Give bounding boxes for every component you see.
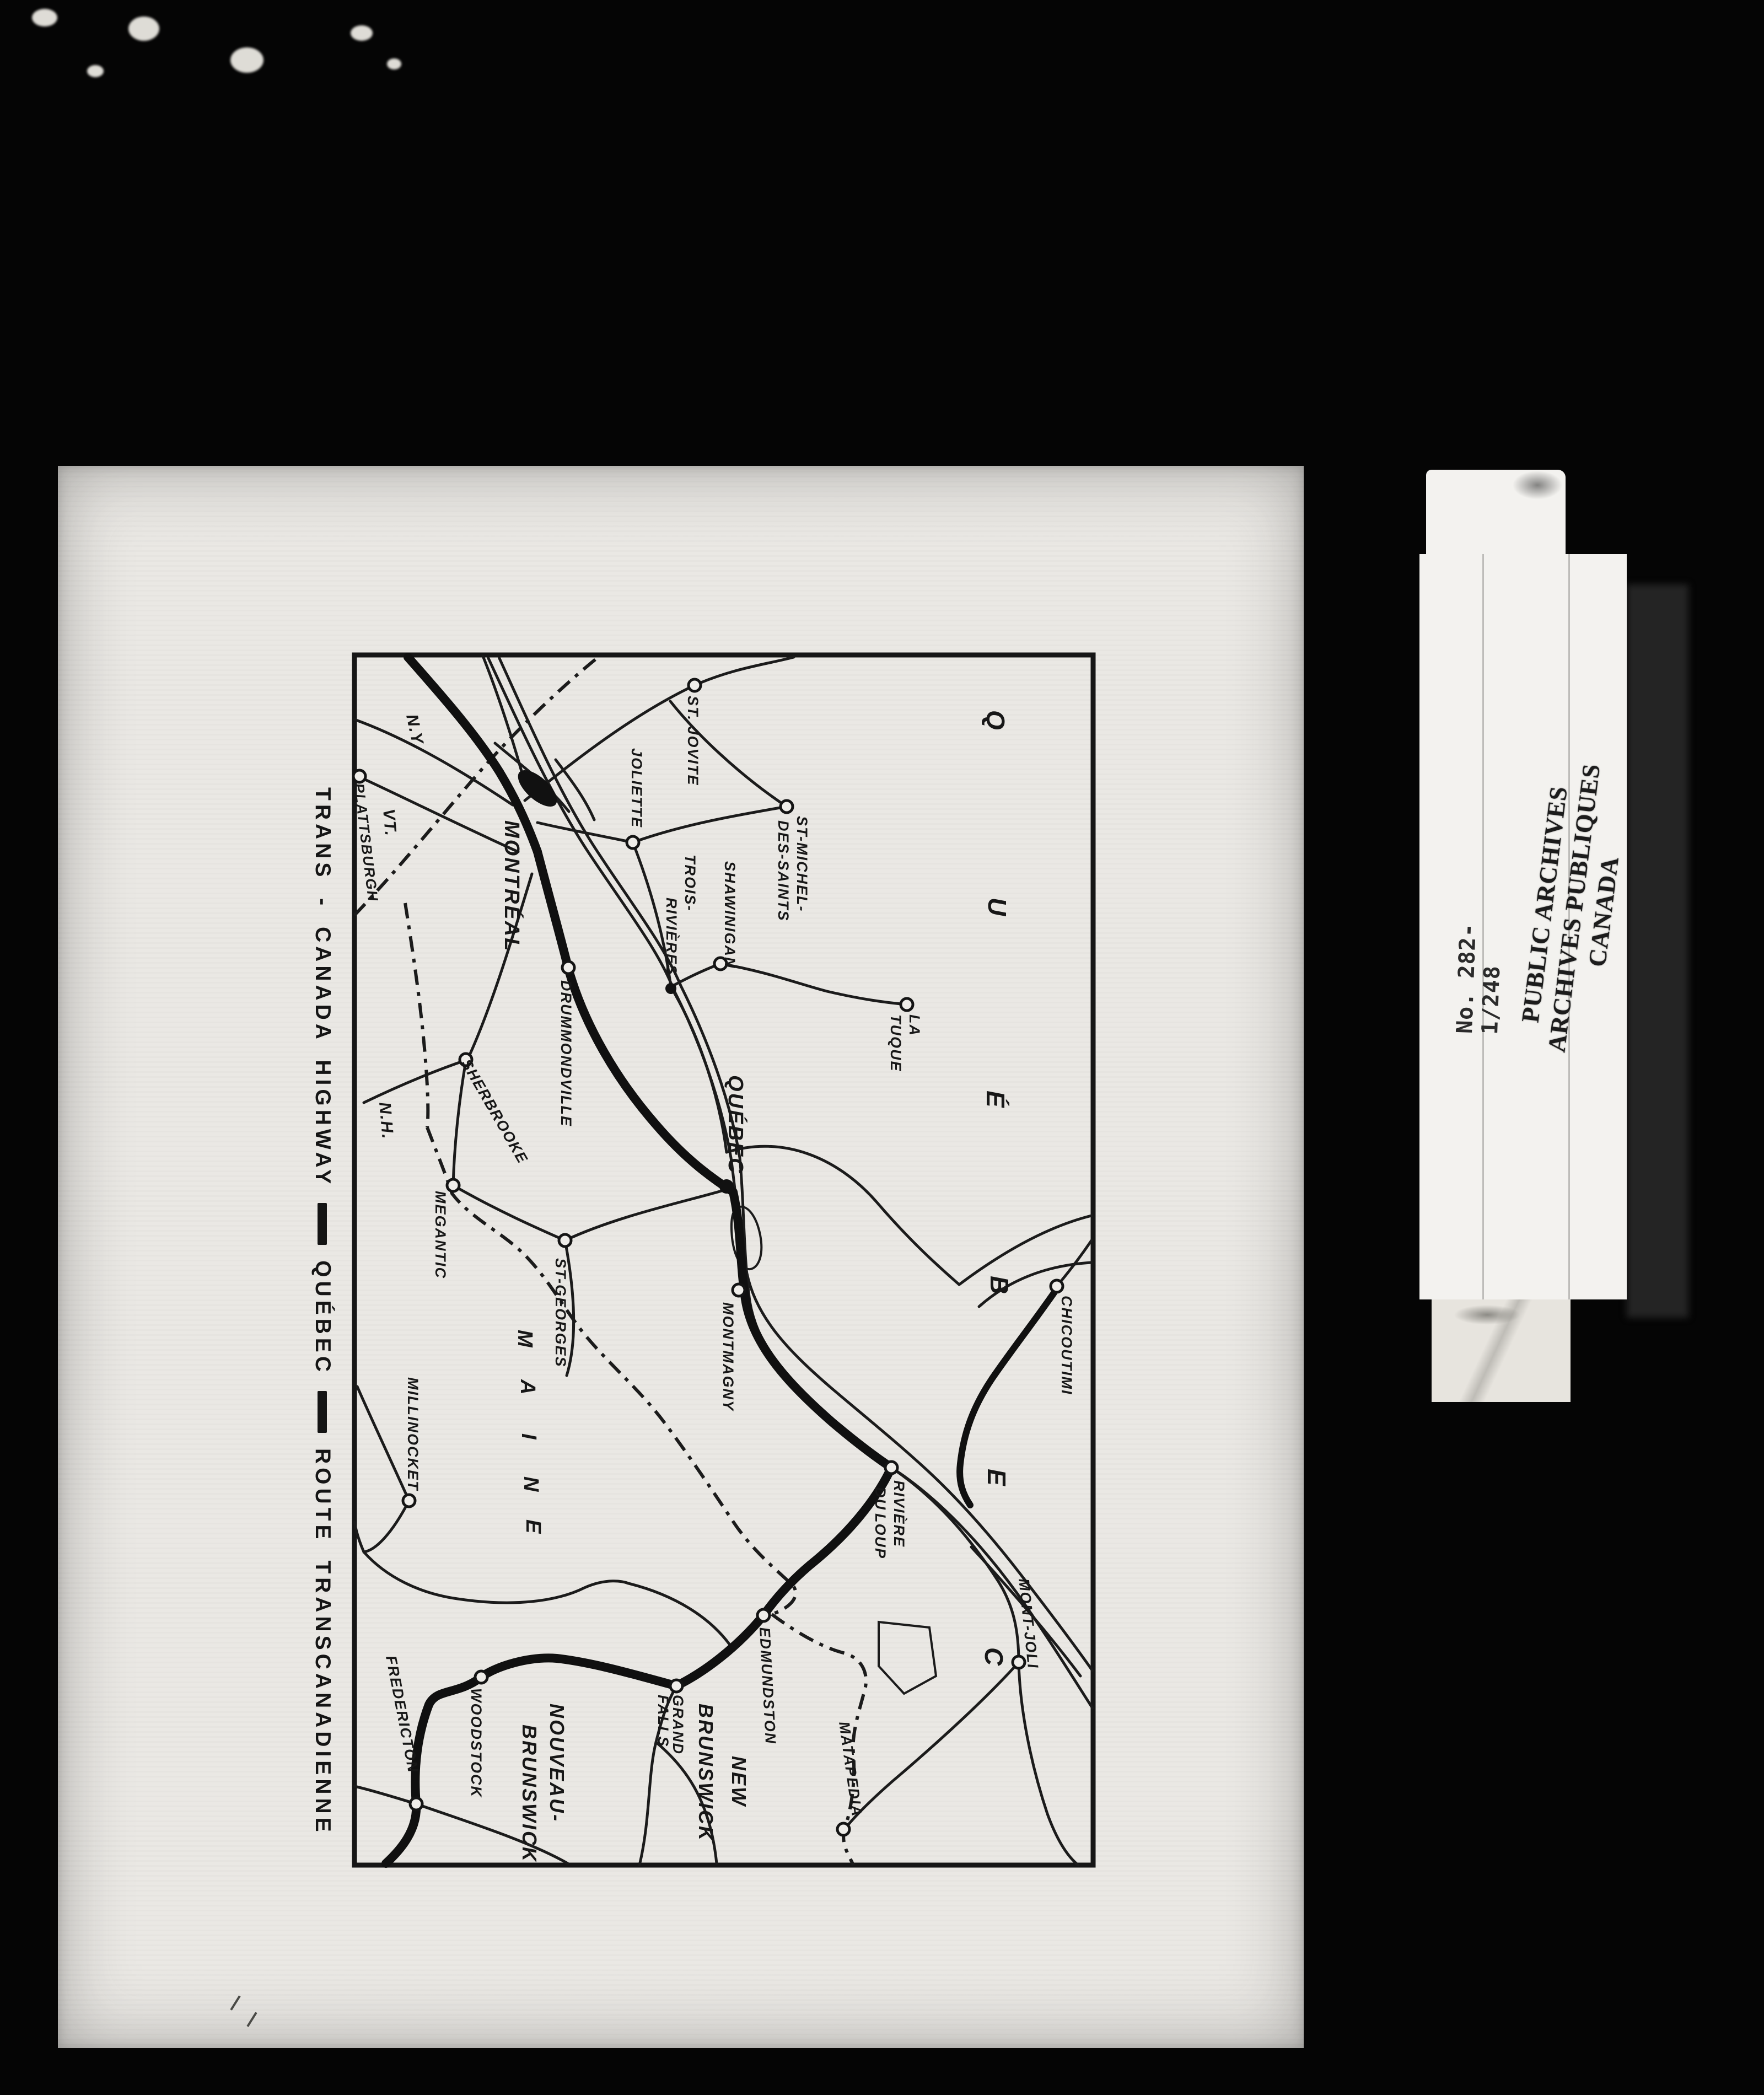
legend-text-french: ROUTE TRANSCANADIENNE: [310, 1448, 335, 1836]
legend-route-line-sample: [318, 1391, 327, 1433]
legend-text-english: TRANS - CANADA HIGHWAY: [310, 787, 335, 1188]
film-speck: [230, 47, 263, 73]
microfilm-frame: TRANS - CANADA HIGHWAY QUÉBEC ROUTE TRAN…: [0, 0, 1764, 2095]
film-speck: [128, 17, 159, 41]
film-frame-number: No. 282-1/248: [1452, 873, 1508, 1035]
film-speck: [87, 65, 104, 77]
film-speck: [387, 58, 401, 69]
legend-highway-line-sample: [318, 1203, 327, 1245]
scanned-page: [58, 466, 1304, 2048]
legend-strip: TRANS - CANADA HIGHWAY QUÉBEC ROUTE TRAN…: [308, 787, 337, 1698]
film-speck: [351, 25, 373, 41]
film-label-glow: [1627, 584, 1688, 1318]
film-speck: [32, 9, 57, 26]
legend-text-quebec: QUÉBEC: [310, 1260, 335, 1376]
film-label-tab: [1426, 470, 1566, 557]
film-smudge: [1513, 471, 1562, 499]
film-label-bottom: [1432, 1299, 1571, 1402]
